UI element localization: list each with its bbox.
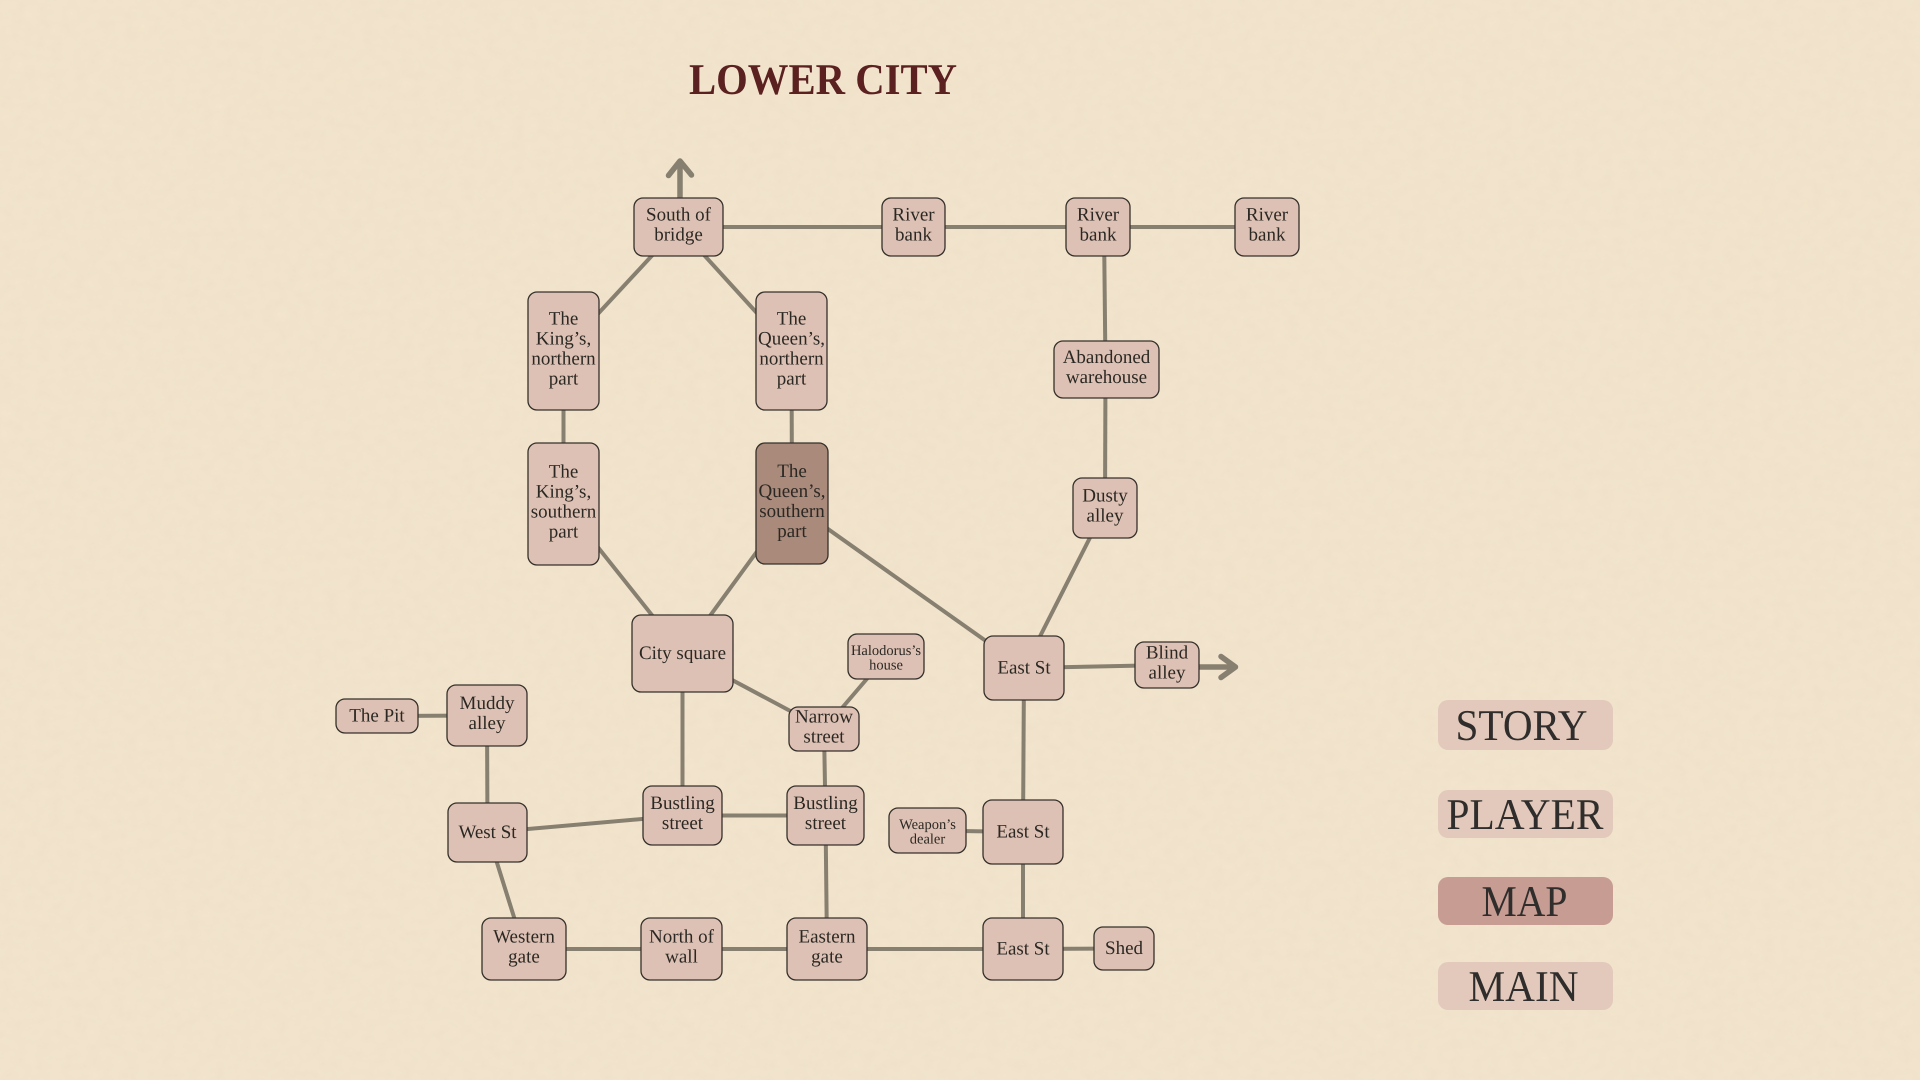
svg-text:wall: wall [665, 946, 698, 967]
svg-text:alley: alley [469, 713, 506, 734]
svg-text:alley: alley [1087, 505, 1124, 526]
svg-text:street: street [662, 813, 704, 834]
svg-text:gate: gate [811, 946, 843, 967]
svg-text:part: part [777, 368, 807, 389]
svg-text:bank: bank [1080, 224, 1117, 245]
svg-text:southern: southern [531, 501, 597, 522]
svg-text:alley: alley [1149, 662, 1186, 683]
svg-text:street: street [803, 726, 845, 747]
svg-text:part: part [777, 521, 807, 542]
svg-text:Muddy: Muddy [460, 693, 515, 714]
svg-text:Blind: Blind [1146, 642, 1189, 663]
svg-text:King’s,: King’s, [536, 481, 591, 502]
svg-text:Queen’s,: Queen’s, [758, 328, 825, 349]
svg-text:Queen’s,: Queen’s, [758, 481, 825, 502]
svg-text:warehouse: warehouse [1066, 367, 1147, 388]
svg-text:dealer: dealer [910, 832, 946, 848]
svg-text:The: The [777, 308, 807, 329]
svg-text:part: part [549, 521, 579, 542]
svg-text:STORY: STORY [1456, 701, 1588, 750]
svg-text:North of: North of [649, 926, 715, 947]
svg-text:King’s,: King’s, [536, 328, 591, 349]
svg-text:northern: northern [531, 348, 596, 369]
svg-text:southern: southern [759, 501, 825, 522]
svg-text:northern: northern [759, 348, 824, 369]
svg-text:gate: gate [508, 946, 540, 967]
svg-text:Bustling: Bustling [793, 793, 858, 814]
svg-text:West St: West St [458, 822, 517, 843]
svg-text:Western: Western [493, 926, 555, 947]
svg-text:part: part [549, 368, 579, 389]
svg-text:East St: East St [996, 938, 1050, 959]
svg-text:South of: South of [646, 204, 712, 225]
svg-text:The: The [777, 461, 807, 482]
svg-text:PLAYER: PLAYER [1447, 790, 1605, 839]
svg-text:street: street [805, 813, 847, 834]
svg-text:Eastern: Eastern [799, 926, 856, 947]
svg-text:LOWER CITY: LOWER CITY [689, 55, 957, 104]
svg-text:The: The [549, 461, 579, 482]
svg-text:Narrow: Narrow [795, 706, 853, 727]
svg-text:The: The [549, 308, 579, 329]
svg-text:MAIN: MAIN [1469, 962, 1579, 1011]
svg-text:bank: bank [895, 224, 932, 245]
svg-text:City square: City square [639, 643, 726, 664]
svg-text:East St: East St [997, 657, 1051, 678]
svg-text:house: house [869, 658, 903, 674]
svg-text:Shed: Shed [1105, 938, 1144, 959]
svg-text:Dusty: Dusty [1082, 485, 1128, 506]
svg-text:River: River [1246, 204, 1289, 225]
svg-text:East St: East St [996, 821, 1050, 842]
svg-text:River: River [892, 204, 935, 225]
svg-text:River: River [1077, 204, 1120, 225]
svg-text:Bustling: Bustling [650, 793, 715, 814]
svg-text:bank: bank [1249, 224, 1286, 245]
svg-text:MAP: MAP [1482, 877, 1568, 926]
svg-text:The Pit: The Pit [349, 705, 405, 726]
svg-text:Abandoned: Abandoned [1063, 347, 1151, 368]
svg-text:bridge: bridge [654, 224, 703, 245]
